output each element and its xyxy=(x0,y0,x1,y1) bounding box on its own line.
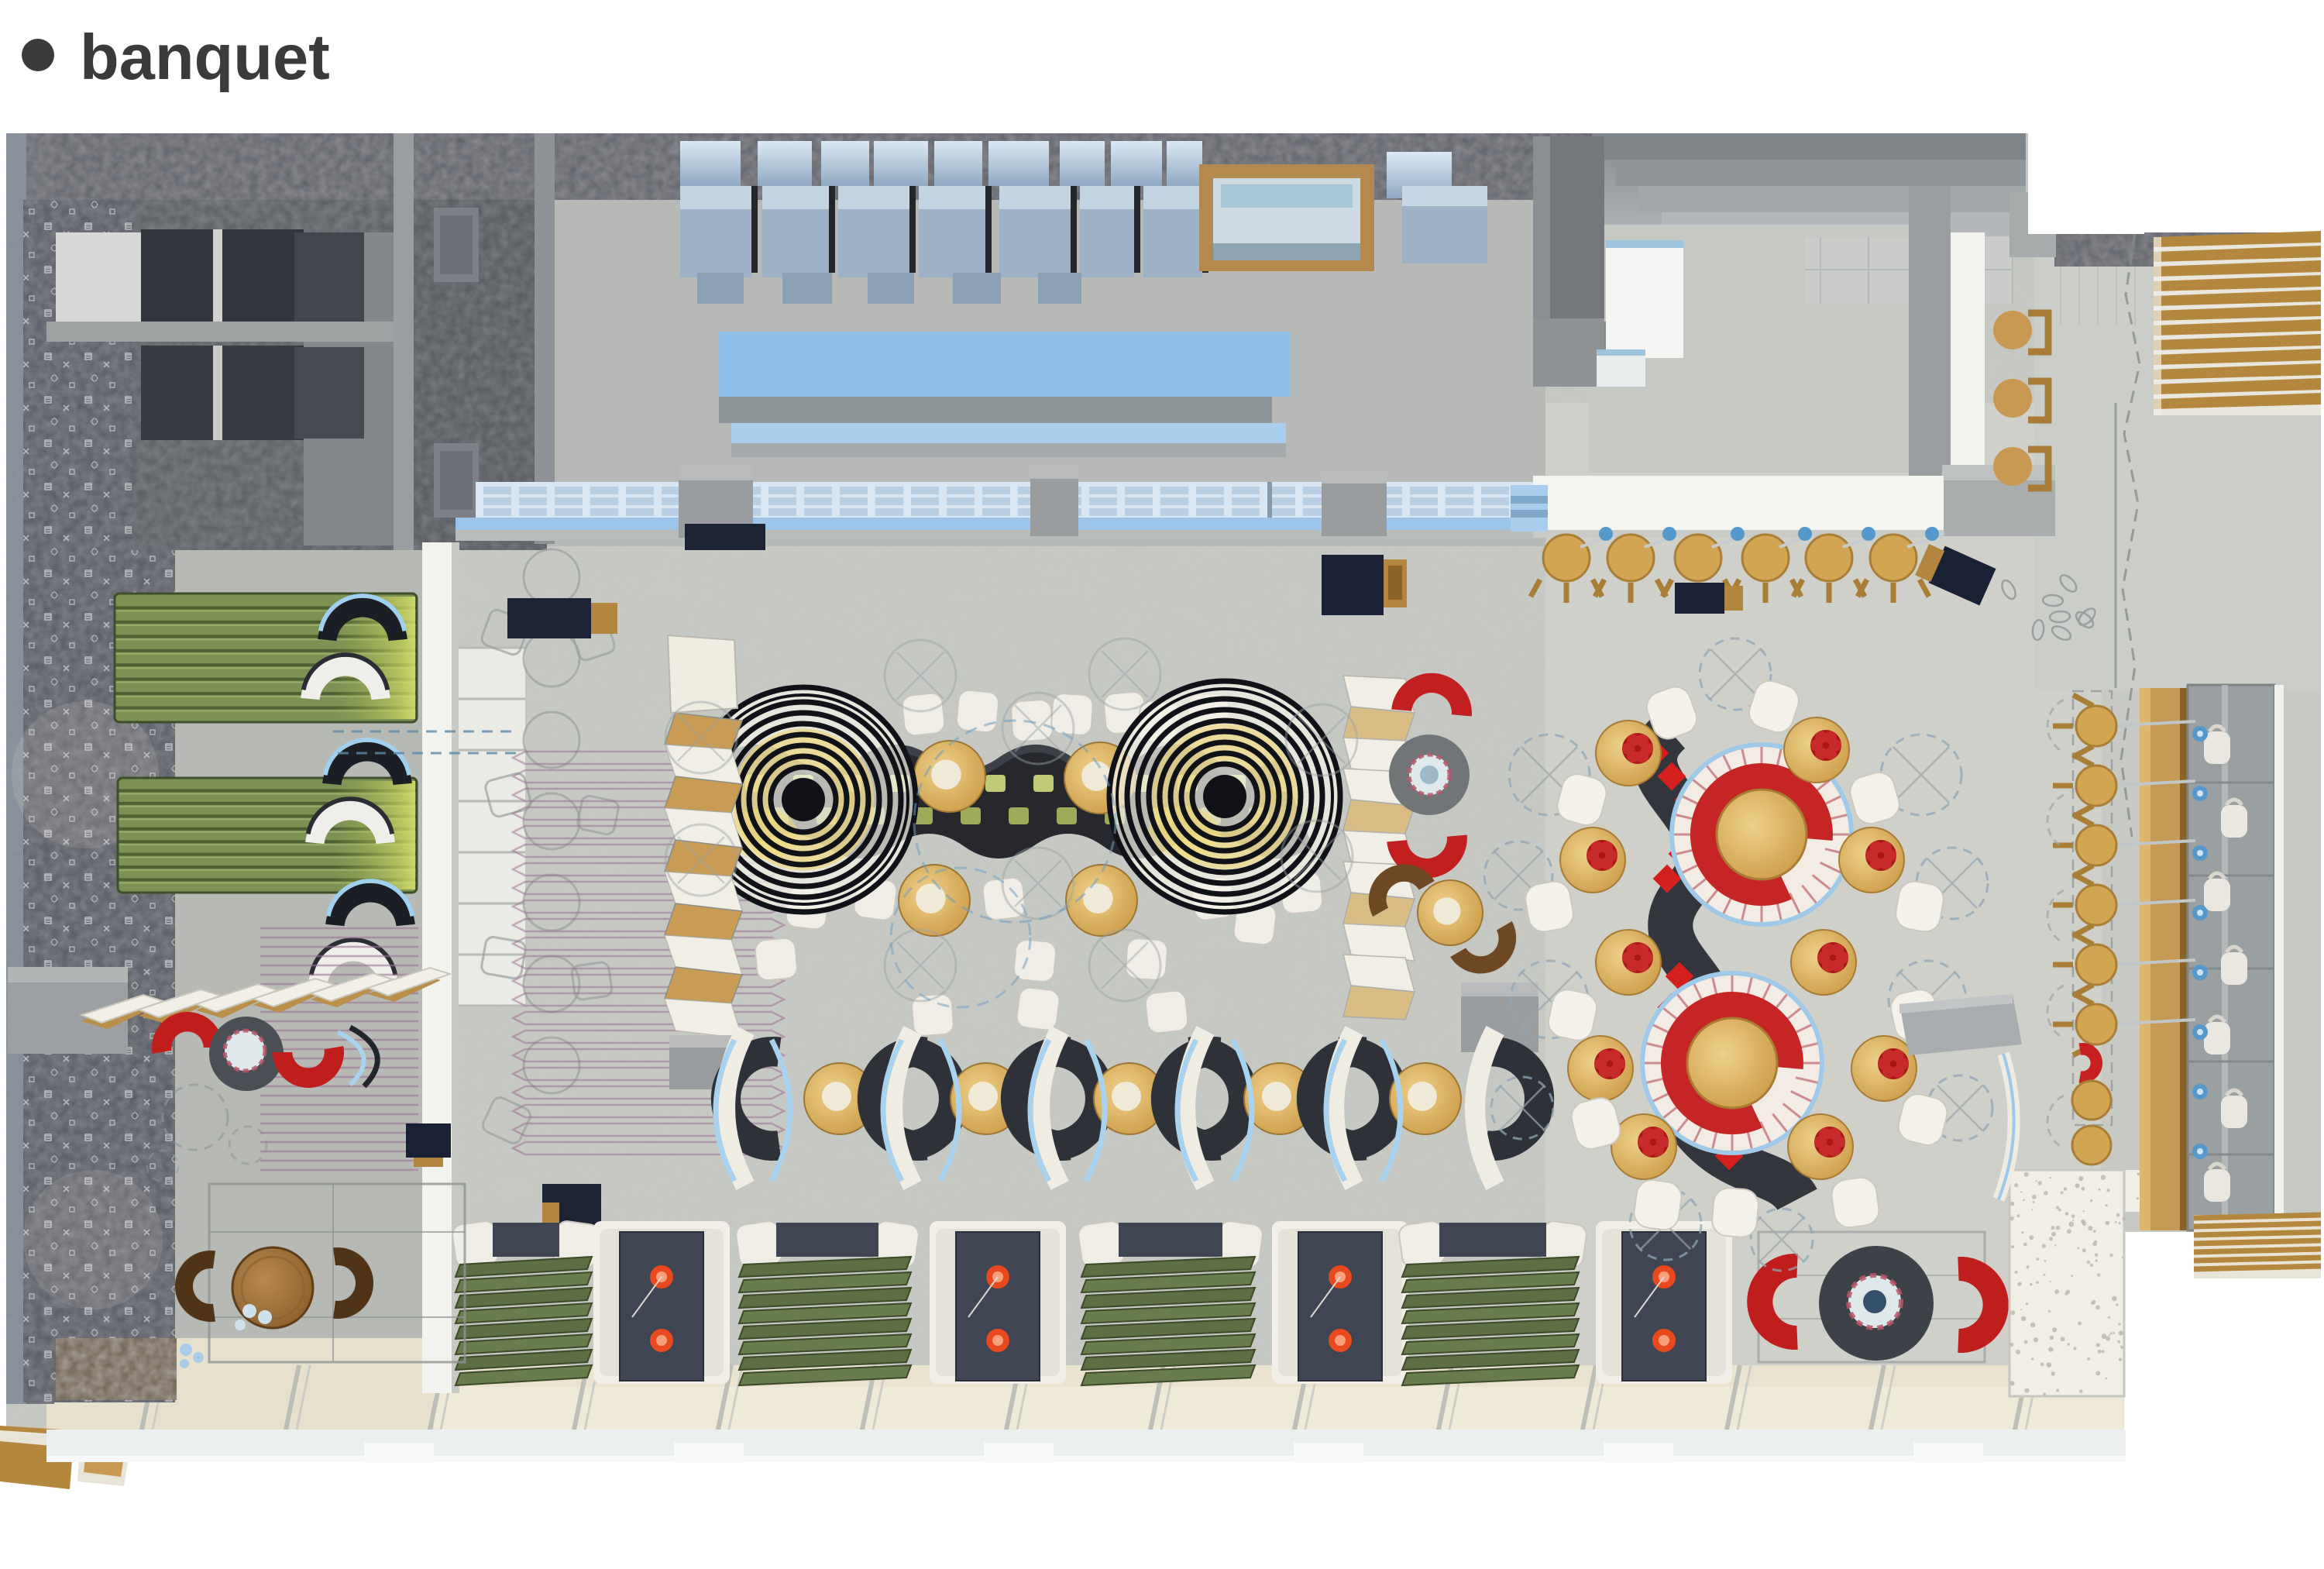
svg-text:banquet: banquet xyxy=(80,21,330,93)
